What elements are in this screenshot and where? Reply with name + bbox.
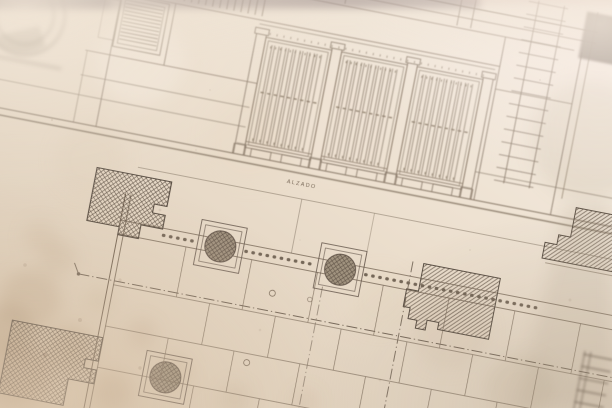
blueprint-photo-canvas: ALZADO [0, 0, 612, 408]
blueprint-photo: ALZADO [0, 0, 612, 408]
photo-effects [0, 0, 612, 408]
